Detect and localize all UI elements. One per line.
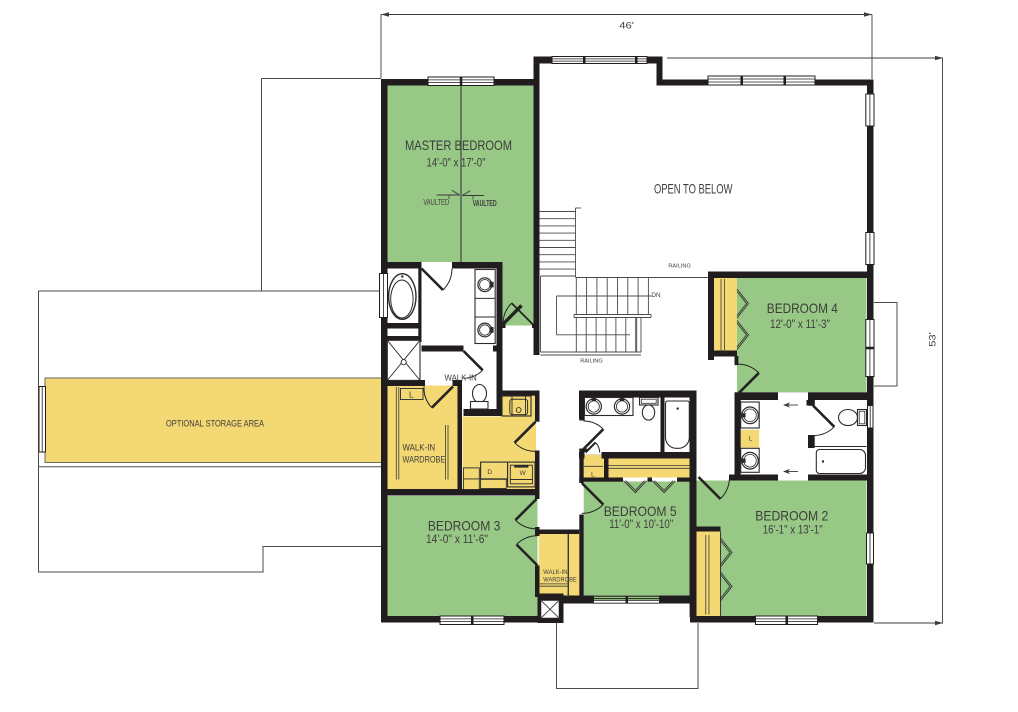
svg-text:WALK-IN: WALK-IN — [403, 442, 436, 452]
svg-text:DN: DN — [651, 292, 660, 299]
svg-text:RAILING: RAILING — [580, 358, 603, 364]
svg-text:VAULTED: VAULTED — [423, 198, 449, 207]
svg-text:D: D — [487, 469, 492, 476]
svg-text:11'-0" x 10'-10": 11'-0" x 10'-10" — [609, 517, 673, 531]
svg-text:WALK-IN: WALK-IN — [543, 569, 567, 576]
svg-text:L: L — [749, 436, 753, 443]
svg-text:46': 46' — [619, 21, 634, 31]
svg-text:14'-0" x 17'-0": 14'-0" x 17'-0" — [427, 155, 486, 169]
svg-text:BEDROOM 4: BEDROOM 4 — [767, 300, 838, 316]
svg-text:WARDROBE: WARDROBE — [543, 577, 577, 584]
svg-text:WARDROBE: WARDROBE — [403, 455, 446, 465]
svg-text:16'-1" x 13'-1": 16'-1" x 13'-1" — [763, 522, 823, 536]
svg-text:53': 53' — [927, 332, 937, 347]
svg-text:BEDROOM 2: BEDROOM 2 — [755, 507, 828, 523]
svg-text:WALK-IN: WALK-IN — [445, 372, 477, 382]
svg-text:VAULTED: VAULTED — [473, 199, 497, 208]
svg-text:MASTER BEDROOM: MASTER BEDROOM — [405, 137, 512, 153]
svg-text:RAILING: RAILING — [668, 263, 691, 269]
svg-text:L: L — [409, 390, 414, 399]
svg-text:OPEN TO BELOW: OPEN TO BELOW — [654, 181, 733, 197]
svg-text:W: W — [520, 470, 527, 477]
svg-text:14'-0" x 11'-6": 14'-0" x 11'-6" — [426, 532, 488, 546]
svg-text:OPTIONAL STORAGE AREA: OPTIONAL STORAGE AREA — [166, 418, 264, 428]
svg-text:12'-0" x 11'-3": 12'-0" x 11'-3" — [770, 317, 830, 331]
